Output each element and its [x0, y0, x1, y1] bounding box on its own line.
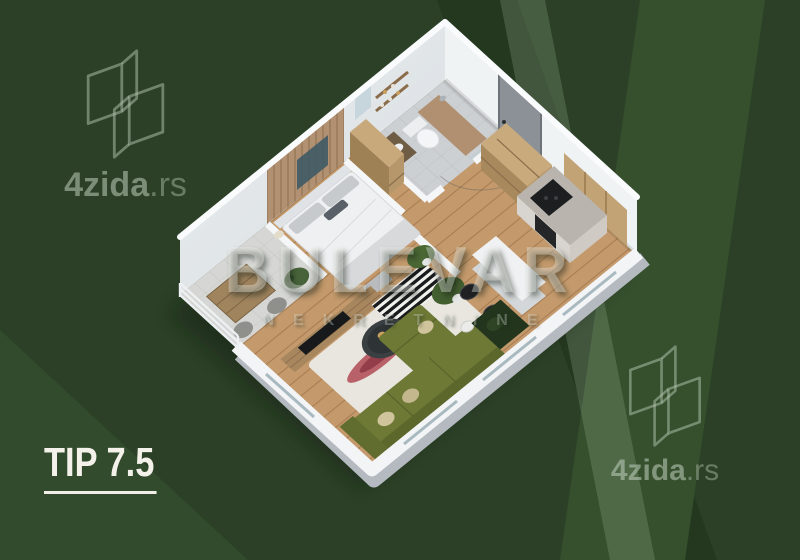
- type-label-text: TIP 7.5: [44, 442, 157, 494]
- promo-image: { "type_label": { "text": "TIP 7.5" }, "…: [0, 0, 800, 560]
- door-handle: [502, 120, 506, 124]
- type-label: TIP 7.5: [44, 442, 157, 494]
